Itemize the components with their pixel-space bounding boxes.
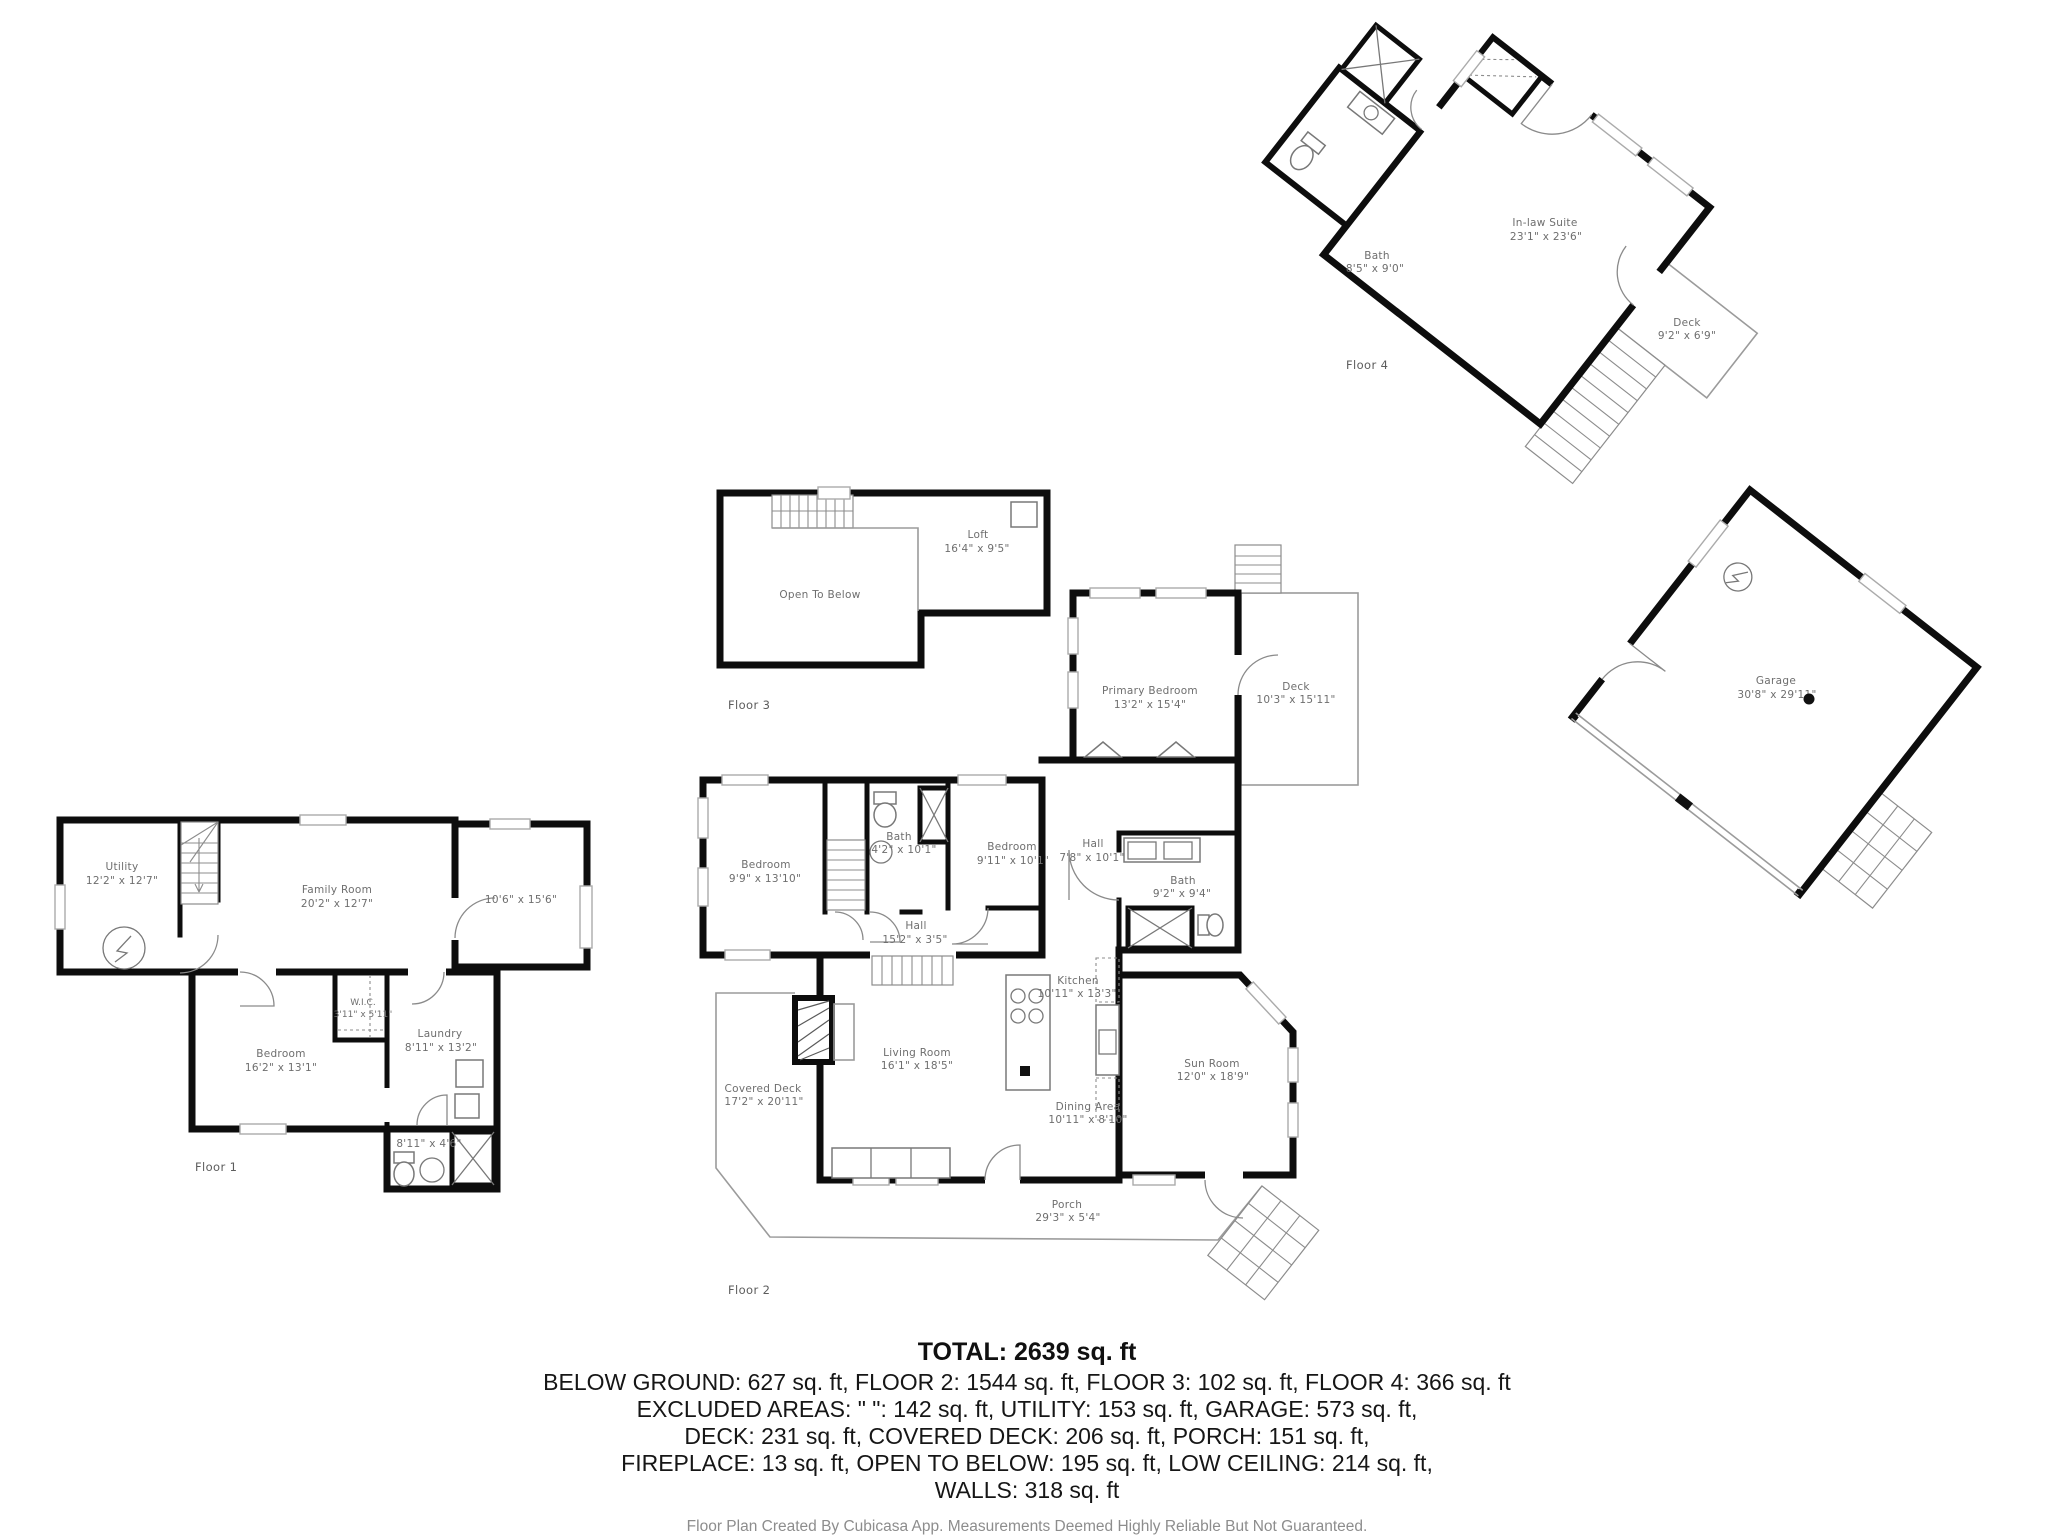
floor1-stairs: [181, 822, 218, 904]
kitchen-label: Kitchen: [1057, 975, 1099, 987]
floor1-bedroom-dims: 16'2" x 13'1": [245, 1062, 317, 1074]
floor2-deck-label: Deck: [1282, 681, 1310, 693]
floor2-shower-right: [1128, 908, 1192, 948]
floor2-hall-upper-dims: 7'8" x 10'1": [1059, 852, 1124, 864]
family-room-dims: 20'2" x 12'7": [301, 898, 373, 910]
floor3-title: Floor 3: [728, 698, 770, 712]
porch-label: Porch: [1052, 1199, 1082, 1211]
sun-room-label: Sun Room: [1184, 1058, 1240, 1070]
primary-bedroom-dims: 13'2" x 15'4": [1114, 699, 1186, 711]
floor1-bedroom-label: Bedroom: [256, 1048, 306, 1060]
porch-dims: 29'3" x 5'4": [1035, 1212, 1100, 1224]
floor4-deck-dims: 9'2" x 6'9": [1658, 330, 1716, 342]
floor3-skylight: [1011, 502, 1037, 527]
floor4-inlaw-suite-dims: 23'1" x 23'6": [1510, 231, 1582, 243]
garage-marker-dot: [1804, 694, 1815, 705]
covered-deck-label: Covered Deck: [725, 1083, 803, 1095]
summary-line-3: DECK: 231 sq. ft, COVERED DECK: 206 sq. …: [684, 1423, 1369, 1449]
floor4-title: Floor 4: [1346, 358, 1388, 372]
floor4-deck-label: Deck: [1673, 317, 1701, 329]
floor4-plan: In-law Suite 23'1" x 23'6" Bath 8'5" x 9…: [1226, 0, 1804, 516]
floor2-hall-upper-label: Hall: [1082, 838, 1103, 850]
floor2-mid-stairs: [827, 840, 865, 910]
living-room-dims: 16'1" x 18'5": [881, 1060, 953, 1072]
primary-bedroom-room: [1073, 593, 1238, 760]
summary-line-1: BELOW GROUND: 627 sq. ft, FLOOR 2: 1544 …: [543, 1369, 1511, 1395]
footer-credit: Floor Plan Created By Cubicasa App. Meas…: [687, 1518, 1368, 1535]
floor2-bedroom-mid-label: Bedroom: [987, 841, 1037, 853]
summary-line-2: EXCLUDED AREAS: " ": 142 sq. ft, UTILITY…: [637, 1396, 1418, 1422]
floor1-plan: Utility 12'2" x 12'7" Family Room 20'2" …: [55, 815, 592, 1189]
floor2-bath-right-label: Bath: [1170, 875, 1196, 887]
open-to-below-label: Open To Below: [779, 589, 860, 601]
summary-total: TOTAL: 2639 sq. ft: [918, 1338, 1137, 1366]
dining-area-dims: 10'11" x 8'10": [1048, 1114, 1127, 1126]
floor3-stair-opening: [818, 487, 850, 499]
floor2-shower-small: [920, 788, 948, 842]
family-room-label: Family Room: [302, 884, 372, 896]
floor2-bath-right-dims: 9'2" x 9'4": [1153, 888, 1211, 900]
floor1-room-unnamed-dims: 10'6" x 15'6": [485, 894, 557, 906]
utility-dims: 12'2" x 12'7": [86, 875, 158, 887]
kitchen-dims: 10'11" x 13'3": [1037, 988, 1116, 1000]
laundry-dims: 8'11" x 13'2": [405, 1042, 477, 1054]
floor2-hall-lower-label: Hall: [905, 920, 926, 932]
fireplace: [795, 998, 854, 1062]
laundry-label: Laundry: [418, 1028, 463, 1040]
loft-label: Loft: [968, 529, 989, 541]
floor4-inlaw-suite-label: In-law Suite: [1512, 217, 1577, 229]
floor2-deck-stairs: [1235, 545, 1281, 593]
floor2-bath-small-dims: 4'2" x 10'1": [871, 844, 936, 856]
floor3-outline: [720, 493, 1047, 665]
utility-label: Utility: [106, 861, 139, 873]
summary-line-5: WALLS: 318 sq. ft: [935, 1477, 1120, 1503]
sun-room-dims: 12'0" x 18'9": [1177, 1071, 1249, 1083]
floor2-bedroom-mid-dims: 9'11" x 10'1": [977, 855, 1049, 867]
floor2-bath-small-label: Bath: [886, 831, 912, 843]
wic-dims: 3'11" x 5'11": [334, 1010, 393, 1020]
floor2-hall-lower-dims: 15'2" x 3'5": [882, 934, 947, 946]
floor1-bath-dims: 8'11" x 4'6": [396, 1138, 461, 1150]
floor2-bedroom-left-dims: 9'9" x 13'10": [729, 873, 801, 885]
wic-label: W.I.C.: [350, 998, 375, 1008]
covered-deck-dims: 17'2" x 20'11": [724, 1096, 803, 1108]
floor2-lower-stairs: [872, 956, 953, 985]
floor2-bedroom-left-label: Bedroom: [741, 859, 791, 871]
primary-bedroom-label: Primary Bedroom: [1102, 685, 1198, 697]
loft-dims: 16'4" x 9'5": [944, 543, 1009, 555]
floor4-bath-label: Bath: [1364, 250, 1390, 262]
sofa: [832, 1148, 950, 1178]
floor-plan-canvas: In-law Suite 23'1" x 23'6" Bath 8'5" x 9…: [0, 0, 2048, 1536]
floor-plan-page: In-law Suite 23'1" x 23'6" Bath 8'5" x 9…: [0, 0, 2048, 1536]
porch-stairs: [1208, 1186, 1319, 1300]
living-room-label: Living Room: [883, 1047, 951, 1059]
garage-label: Garage: [1756, 675, 1796, 687]
dining-area-label: Dining Area: [1056, 1101, 1121, 1113]
floor3-plan: Loft 16'4" x 9'5" Open To Below Floor 3: [720, 487, 1047, 712]
floor2-deck-dims: 10'3" x 15'11": [1256, 694, 1335, 706]
garage-plan: Garage 30'8" x 29'11": [1564, 482, 2032, 940]
floor4-bath-dims: 8'5" x 9'0": [1346, 263, 1404, 275]
floor1-title: Floor 1: [195, 1160, 237, 1174]
floor3-stairs: [772, 495, 853, 528]
summary-block: TOTAL: 2639 sq. ft BELOW GROUND: 627 sq.…: [543, 1338, 1511, 1535]
floor2-title: Floor 2: [728, 1283, 770, 1297]
summary-line-4: FIREPLACE: 13 sq. ft, OPEN TO BELOW: 195…: [621, 1450, 1433, 1476]
